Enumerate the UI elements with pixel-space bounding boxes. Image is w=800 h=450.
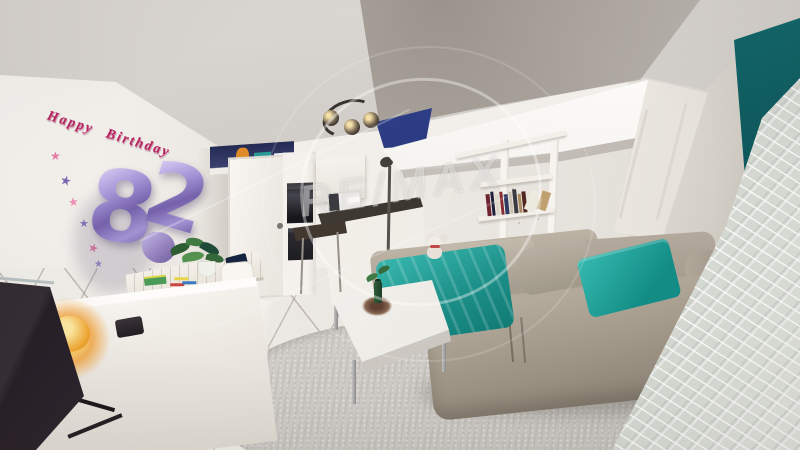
apartment-photo: Happy Birthday ★ ★ ★ ★ ★ ★ 8 2 RE/MAX xyxy=(0,0,800,450)
photo-vignette xyxy=(0,0,800,450)
